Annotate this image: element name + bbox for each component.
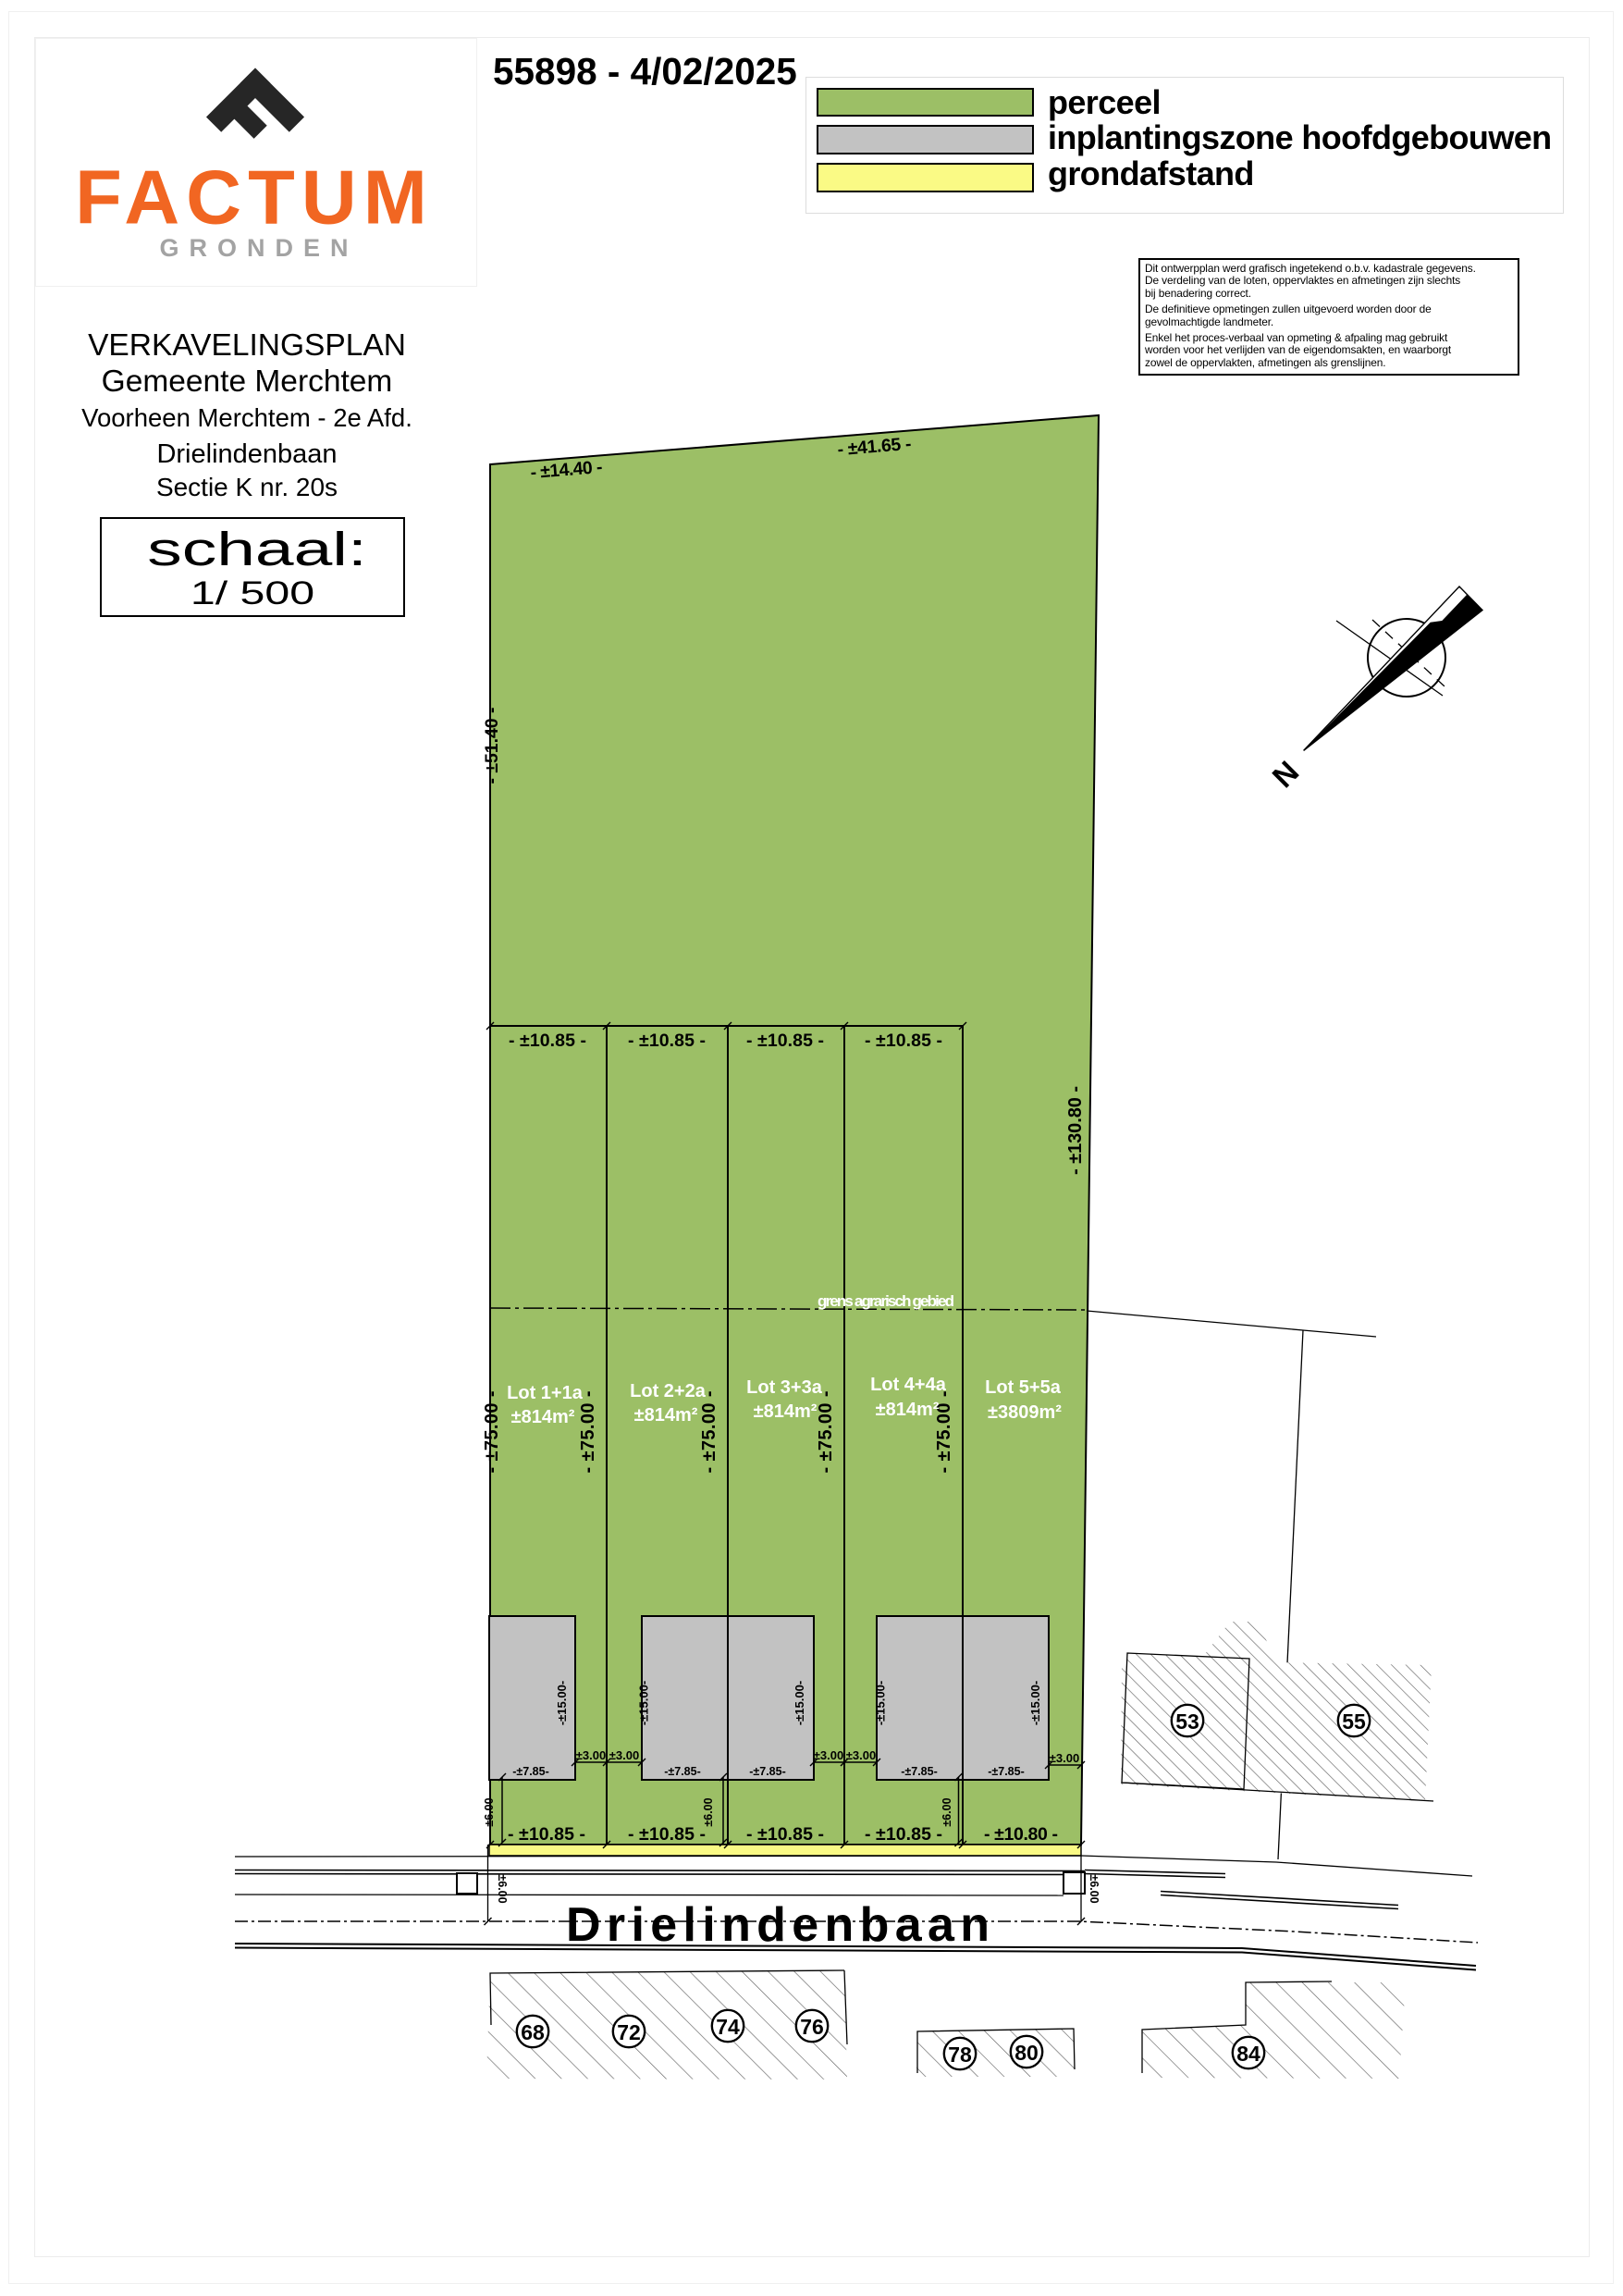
- svg-text:- ±10.85 -: - ±10.85 -: [508, 1824, 585, 1845]
- svg-text:-±15.00-: -±15.00-: [874, 1681, 888, 1725]
- svg-text:±3.00: ±3.00: [1050, 1751, 1079, 1765]
- svg-text:- ±75.00 -: - ±75.00 -: [816, 1391, 836, 1474]
- svg-text:68: 68: [521, 2020, 545, 2044]
- svg-text:- ±10.85 -: - ±10.85 -: [865, 1031, 942, 1051]
- svg-text:76: 76: [800, 2015, 824, 2039]
- svg-text:53: 53: [1175, 1710, 1199, 1734]
- svg-text:Lot 1+1a: Lot 1+1a: [507, 1383, 584, 1403]
- svg-text:±3.00: ±3.00: [814, 1748, 843, 1762]
- svg-text:-±7.85-: -±7.85-: [512, 1765, 549, 1778]
- svg-text:N: N: [1265, 754, 1305, 794]
- svg-text:- ±75.00 -: - ±75.00 -: [699, 1391, 719, 1474]
- svg-text:- ±10.85 -: - ±10.85 -: [746, 1824, 824, 1845]
- svg-text:±3.00: ±3.00: [576, 1748, 606, 1762]
- svg-text:Lot 4+4a: Lot 4+4a: [870, 1375, 947, 1395]
- svg-text:±3.00: ±3.00: [846, 1748, 876, 1762]
- svg-text:Lot 2+2a: Lot 2+2a: [630, 1381, 707, 1401]
- svg-text:78: 78: [948, 2043, 972, 2067]
- svg-text:-±7.85-: -±7.85-: [901, 1765, 938, 1778]
- svg-text:84: 84: [1236, 2042, 1260, 2066]
- svg-text:- ±10.80 -: - ±10.80 -: [984, 1824, 1058, 1845]
- svg-text:-±15.00-: -±15.00-: [1028, 1681, 1042, 1725]
- svg-text:±3.00: ±3.00: [609, 1748, 639, 1762]
- svg-text:±814m²: ±814m²: [634, 1405, 698, 1426]
- svg-text:±6.00: ±6.00: [702, 1797, 715, 1826]
- svg-text:-±7.85-: -±7.85-: [988, 1765, 1025, 1778]
- svg-text:- ±75.00 -: - ±75.00 -: [482, 1391, 502, 1474]
- svg-text:- ±10.85 -: - ±10.85 -: [628, 1824, 706, 1845]
- svg-text:-±15.00-: -±15.00-: [793, 1681, 806, 1725]
- svg-text:55: 55: [1342, 1710, 1366, 1734]
- svg-text:±3809m²: ±3809m²: [988, 1402, 1062, 1423]
- svg-text:Drielindenbaan: Drielindenbaan: [566, 1898, 990, 1952]
- svg-text:80: 80: [1014, 2041, 1039, 2065]
- svg-text:- ±10.85 -: - ±10.85 -: [509, 1031, 586, 1051]
- svg-text:- ±10.85 -: - ±10.85 -: [746, 1031, 824, 1051]
- svg-text:- ±51.40 -: - ±51.40 -: [482, 708, 502, 784]
- svg-text:-±15.00-: -±15.00-: [555, 1681, 569, 1725]
- svg-text:±814m²: ±814m²: [511, 1407, 575, 1427]
- svg-text:-±15.00-: -±15.00-: [637, 1681, 651, 1725]
- svg-text:-±7.85-: -±7.85-: [664, 1765, 701, 1778]
- svg-text:74: 74: [716, 2015, 740, 2039]
- svg-text:- ±130.80 -: - ±130.80 -: [1065, 1086, 1086, 1175]
- svg-text:- ±10.85 -: - ±10.85 -: [628, 1031, 706, 1051]
- svg-text:72: 72: [617, 2020, 641, 2044]
- svg-text:±814m²: ±814m²: [754, 1401, 818, 1422]
- svg-text:- ±10.85 -: - ±10.85 -: [865, 1824, 942, 1845]
- svg-text:grens agrarisch gebied: grens agrarisch gebied: [818, 1292, 954, 1310]
- svg-text:±6.00: ±6.00: [1088, 1874, 1100, 1903]
- svg-text:±6.00: ±6.00: [496, 1874, 509, 1903]
- svg-text:±6.00: ±6.00: [483, 1797, 496, 1826]
- svg-text:±814m²: ±814m²: [876, 1400, 940, 1420]
- svg-text:Lot 3+3a: Lot 3+3a: [746, 1377, 823, 1398]
- svg-text:±6.00: ±6.00: [941, 1797, 953, 1826]
- svg-text:-±7.85-: -±7.85-: [749, 1765, 786, 1778]
- svg-text:Lot 5+5a: Lot 5+5a: [985, 1377, 1062, 1398]
